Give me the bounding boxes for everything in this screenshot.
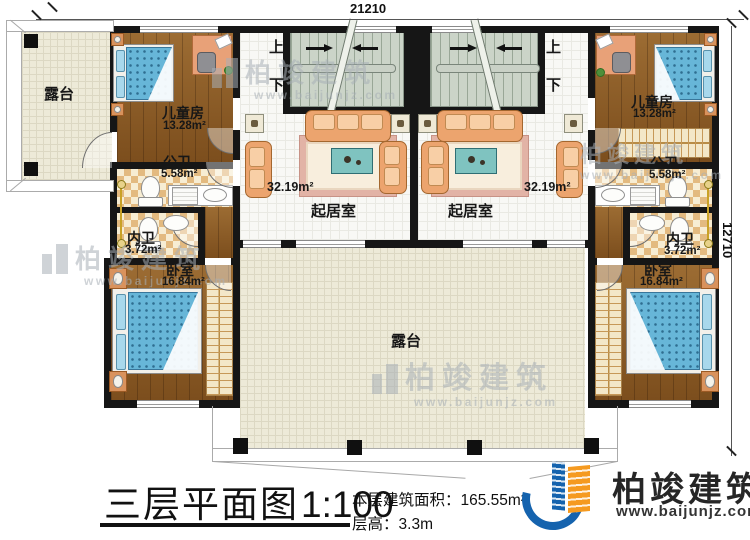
bed-pillow bbox=[702, 294, 712, 330]
wall bbox=[585, 240, 595, 248]
stair-arrow-head bbox=[352, 44, 361, 52]
table-decor bbox=[480, 160, 485, 165]
wall bbox=[365, 240, 463, 248]
nightstand bbox=[704, 103, 717, 116]
wall bbox=[233, 186, 240, 240]
wardrobe bbox=[618, 128, 710, 158]
private-bath-right-area: 3.72m² bbox=[664, 246, 700, 258]
nightstand bbox=[109, 268, 127, 289]
sofa-cushion bbox=[469, 114, 491, 130]
drawing-title: 三层平面图 1:100 bbox=[104, 474, 394, 528]
children-room-right-area: 13.28m² bbox=[633, 109, 676, 121]
sliding-door bbox=[547, 240, 585, 248]
stair-arrow bbox=[306, 47, 324, 50]
sofa-cushion bbox=[563, 147, 579, 167]
sofa-cushion bbox=[337, 114, 359, 130]
private-bath-left-area: 3.72m² bbox=[125, 245, 161, 257]
window bbox=[610, 26, 688, 33]
stair-arrow-head bbox=[324, 44, 333, 52]
window bbox=[140, 26, 218, 33]
living-right-label: 起居室 bbox=[448, 204, 493, 219]
wall bbox=[283, 26, 290, 114]
side-table bbox=[391, 114, 410, 133]
bedroom-left-label: 卧室 bbox=[166, 263, 194, 277]
floor-plan-canvas: 21210 12710 露台 上 下 上 下 bbox=[0, 0, 750, 540]
table-decor bbox=[356, 160, 361, 165]
desk-chair bbox=[612, 52, 631, 73]
brand-watermark-icon bbox=[42, 244, 68, 274]
sink bbox=[163, 215, 189, 231]
public-bath-left-label: 公卫 bbox=[163, 155, 191, 169]
side-table bbox=[564, 114, 583, 133]
bed-pillow bbox=[703, 50, 712, 72]
washer bbox=[172, 187, 198, 205]
wall bbox=[199, 400, 240, 408]
toilet-tank bbox=[665, 197, 690, 207]
towel-rail bbox=[120, 188, 122, 240]
living-right-area: 32.19m² bbox=[524, 181, 571, 194]
wall bbox=[623, 207, 719, 213]
desk-chair bbox=[197, 52, 216, 73]
bed-pillow bbox=[116, 50, 125, 72]
drawing-title-text: 三层平面图 bbox=[104, 474, 299, 528]
public-bath-right-area: 5.58m² bbox=[649, 170, 685, 182]
brand-logo-building-icon bbox=[568, 465, 590, 513]
table-decor bbox=[344, 156, 351, 163]
floor-height-label: 层高： bbox=[352, 516, 399, 533]
stair-up-label-right: 上 bbox=[546, 40, 561, 55]
wall bbox=[233, 240, 240, 408]
sink bbox=[639, 215, 665, 231]
bed-pillow bbox=[116, 76, 125, 98]
coffee-table bbox=[331, 148, 373, 174]
bed-pillow bbox=[116, 294, 126, 330]
sofa-cushion bbox=[384, 167, 400, 186]
sofa-cushion bbox=[313, 114, 335, 130]
sofa-cushion bbox=[493, 114, 515, 130]
dimension-right-value: 12710 bbox=[720, 215, 734, 265]
sofa-cushion bbox=[445, 114, 467, 130]
wall bbox=[588, 26, 595, 98]
private-bath-right-label: 内卫 bbox=[666, 232, 694, 246]
floor-area-info: 本层建筑面积：165.55m² bbox=[352, 488, 526, 510]
sliding-door bbox=[296, 240, 365, 248]
living-left-area: 32.19m² bbox=[267, 181, 314, 194]
dimension-line-top bbox=[36, 19, 744, 20]
column bbox=[24, 34, 38, 48]
vestibule-right bbox=[595, 207, 623, 258]
wall bbox=[588, 186, 595, 240]
floor-height-value: 3.3m bbox=[399, 516, 433, 533]
dimension-tick bbox=[47, 2, 58, 13]
plant bbox=[596, 68, 605, 77]
stair-down-label-right: 下 bbox=[546, 78, 561, 93]
railing-line bbox=[617, 406, 618, 450]
wall bbox=[588, 130, 595, 160]
coffee-table bbox=[455, 148, 497, 174]
stair-arrow bbox=[450, 47, 468, 50]
plant bbox=[224, 66, 233, 75]
column bbox=[24, 162, 38, 176]
sofa-cushion bbox=[428, 167, 444, 186]
washer bbox=[630, 187, 656, 205]
wall bbox=[588, 240, 595, 408]
terrace-left-railing bbox=[6, 180, 114, 192]
sliding-door bbox=[463, 240, 532, 248]
wall bbox=[233, 130, 240, 160]
bed-pillow bbox=[703, 76, 712, 98]
sofa-cushion bbox=[361, 114, 383, 130]
side-table bbox=[418, 114, 437, 133]
stair-up-label-left: 上 bbox=[269, 40, 284, 55]
public-bath-left-area: 5.58m² bbox=[161, 169, 197, 181]
nightstand bbox=[701, 268, 719, 289]
bed-pillow bbox=[116, 334, 126, 370]
sink bbox=[203, 188, 227, 202]
window bbox=[629, 400, 691, 408]
wardrobe bbox=[595, 282, 622, 396]
terrace-bottom-railing bbox=[212, 448, 618, 462]
terrace-left-label: 露台 bbox=[44, 87, 74, 102]
sofa-cushion bbox=[384, 146, 400, 165]
sink bbox=[601, 188, 625, 202]
wardrobe bbox=[206, 282, 233, 396]
floor-height-info: 层高：3.3m bbox=[352, 512, 433, 534]
side-table bbox=[245, 114, 264, 133]
nightstand bbox=[701, 371, 719, 392]
nightstand bbox=[111, 103, 124, 116]
living-left-label: 起居室 bbox=[311, 204, 356, 219]
brand-logo-building-icon bbox=[552, 461, 565, 510]
wall bbox=[104, 400, 137, 408]
children-room-left-area: 13.28m² bbox=[163, 121, 206, 133]
column bbox=[347, 440, 362, 455]
public-bath-right-label: 公卫 bbox=[650, 156, 678, 170]
title-underline bbox=[100, 523, 350, 527]
stair-arrow bbox=[360, 47, 378, 50]
railing-line bbox=[212, 406, 213, 450]
wall bbox=[110, 207, 205, 213]
private-bath-left-label: 内卫 bbox=[127, 231, 155, 245]
sofa-cushion bbox=[249, 147, 265, 167]
table-decor bbox=[468, 156, 475, 163]
floor-area-label: 本层建筑面积： bbox=[352, 492, 461, 509]
vestibule-left bbox=[205, 207, 233, 258]
wall bbox=[233, 26, 240, 98]
bed-pillow bbox=[702, 334, 712, 370]
terrace-left-railing bbox=[6, 20, 22, 192]
brand-site: www.baijunjz.com bbox=[616, 503, 750, 520]
stair-down-label-left: 下 bbox=[269, 78, 284, 93]
wall bbox=[588, 258, 597, 265]
wall bbox=[231, 258, 240, 265]
dimension-top-value: 21210 bbox=[347, 2, 389, 16]
column bbox=[584, 438, 599, 454]
nightstand bbox=[704, 33, 717, 46]
column bbox=[233, 438, 248, 454]
wall bbox=[233, 240, 243, 248]
towel-rail bbox=[707, 188, 709, 240]
wall bbox=[281, 240, 296, 248]
stair-arrow bbox=[504, 47, 522, 50]
sliding-door bbox=[243, 240, 281, 248]
party-wall bbox=[404, 26, 430, 114]
stair-arrow-head bbox=[468, 44, 477, 52]
floor-area-value: 165.55m² bbox=[461, 492, 526, 509]
wall bbox=[532, 240, 547, 248]
bedroom-right-area: 16.84m² bbox=[640, 277, 683, 289]
children-room-right-label: 儿童房 bbox=[631, 95, 673, 109]
window bbox=[137, 400, 199, 408]
children-room-left-label: 儿童房 bbox=[162, 106, 204, 120]
party-wall bbox=[410, 114, 418, 240]
column bbox=[467, 440, 482, 455]
bedroom-left-area: 16.84m² bbox=[162, 277, 205, 289]
wall bbox=[588, 400, 629, 408]
wall bbox=[691, 400, 719, 408]
stair-arrow-head bbox=[496, 44, 505, 52]
terrace-bottom-label: 露台 bbox=[391, 334, 421, 349]
nightstand bbox=[111, 33, 124, 46]
sofa-cushion bbox=[428, 146, 444, 165]
nightstand bbox=[109, 371, 127, 392]
toilet-tank bbox=[138, 197, 163, 207]
bedroom-right-label: 卧室 bbox=[644, 263, 672, 277]
sofa-cushion bbox=[249, 169, 265, 189]
